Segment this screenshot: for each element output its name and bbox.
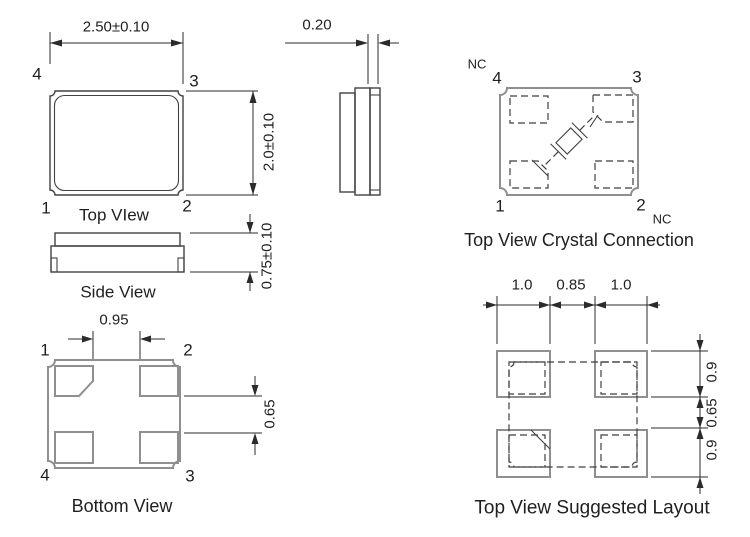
package-pad-dashed: [509, 435, 545, 467]
pin-label: 1: [40, 341, 49, 360]
pad-1-chamfered: [55, 366, 93, 396]
top-view-height-dimension: 2.0±0.10: [261, 113, 278, 171]
arrowhead-down: [697, 386, 704, 397]
land-pad-2: [595, 351, 647, 397]
crystal-lead: [546, 152, 559, 165]
side-lid: [55, 233, 180, 246]
arrowhead-down: [697, 417, 704, 428]
arrowhead-up: [252, 433, 259, 444]
pin-label: 3: [632, 68, 641, 87]
pin1-chamfer-line: [531, 430, 550, 449]
package-outline: [48, 360, 180, 468]
crystal-plate: [551, 144, 567, 160]
pad-1-dashed: [510, 161, 548, 188]
side-view-figure: 0.75±0.10 Side View: [51, 214, 276, 302]
bottom-view-pitch-dimension: 0.65: [262, 399, 279, 428]
bottom-view-gap-dimension: 0.95: [99, 312, 128, 329]
arrowhead-down: [252, 385, 259, 396]
pad-2-dashed: [595, 161, 633, 188]
arrowhead-up: [697, 397, 704, 408]
side-pad-left: [51, 258, 57, 272]
side-pad-right: [178, 258, 184, 272]
arrowhead-up: [697, 428, 704, 439]
top-view-caption: Top VIew: [79, 206, 150, 225]
pad-3-dashed: [593, 95, 633, 122]
arrowhead-left: [647, 302, 658, 309]
pin-label: 3: [189, 72, 198, 91]
arrowhead-right: [584, 302, 595, 309]
arrowhead-up: [247, 272, 254, 283]
layout-dim-bottom: 0.9: [704, 440, 721, 461]
layout-dim-middle: 0.65: [704, 398, 721, 427]
arrowhead-right: [356, 40, 368, 47]
arrowhead-down: [250, 183, 257, 195]
pin-label: 4: [492, 69, 501, 88]
land-pad-3: [497, 430, 550, 477]
side-view-height-dimension: 0.75±0.10: [259, 223, 276, 290]
nc-label: NC: [653, 212, 672, 227]
arrowhead-right: [486, 302, 497, 309]
layout-dim-right: 1.0: [611, 277, 632, 294]
profile-thickness-dimension: 0.20: [302, 17, 331, 34]
pad-4-dashed: [510, 96, 548, 123]
bottom-view-figure: 0.95 1 2 4 3 0.65 Bottom View: [40, 312, 278, 517]
pin-label: 1: [495, 197, 504, 216]
suggested-layout-caption: Top View Suggested Layout: [474, 498, 710, 519]
package-lid: [55, 96, 179, 191]
side-base: [51, 246, 184, 272]
arrowhead-left: [595, 302, 606, 309]
crystal-lead: [580, 118, 593, 131]
profile-base: [370, 88, 380, 195]
arrowhead-left: [378, 40, 390, 47]
pin-label: 2: [182, 197, 191, 216]
arrowhead-left: [140, 336, 151, 343]
layout-dim-left: 1.0: [512, 277, 533, 294]
package-pad-dashed: [509, 362, 545, 394]
package-pad-dashed: [601, 362, 637, 394]
profile-body: [355, 88, 370, 195]
arrowhead-down: [697, 340, 704, 351]
land-pad-1: [497, 351, 550, 397]
nc-label: NC: [468, 57, 487, 72]
bottom-view-caption: Bottom View: [72, 496, 174, 516]
layout-dim-top: 0.9: [704, 362, 721, 383]
side-view-caption: Side View: [80, 283, 156, 302]
drawing-sheet: 2.50±0.10 4 3 1 2 2.0±0.10 Top VIew 0.20: [0, 0, 750, 537]
top-view-figure: 2.50±0.10 4 3 1 2 2.0±0.10 Top VIew: [32, 19, 277, 225]
package-pad-dashed: [601, 435, 637, 467]
land-pad-4: [595, 430, 647, 477]
arrowhead-up: [250, 91, 257, 103]
crystal-connection-caption: Top View Crystal Connection: [464, 230, 694, 250]
layout-dim-center: 0.85: [556, 277, 585, 294]
pad-2: [140, 366, 178, 396]
package-drawing: 2.50±0.10 4 3 1 2 2.0±0.10 Top VIew 0.20: [0, 0, 750, 537]
pad-3-link-line: [590, 115, 598, 127]
pad-3: [140, 432, 178, 463]
arrowhead-up: [697, 477, 704, 488]
arrowhead-right: [539, 302, 550, 309]
arrowhead-down: [247, 222, 254, 233]
pin-label: 4: [32, 65, 41, 84]
crystal-plate: [572, 123, 588, 139]
profile-lid: [340, 93, 355, 192]
crystal-connection-figure: NC 4 3 1 2 NC Top View Crystal Connectio…: [464, 57, 694, 251]
package-outline: [50, 91, 183, 195]
crystal-body: [556, 128, 582, 154]
crystal-symbol: [538, 110, 600, 172]
arrowhead-left: [550, 302, 561, 309]
package-outline-dashed: [509, 362, 637, 467]
arrowhead-left: [50, 40, 62, 47]
arrowhead-right: [82, 336, 93, 343]
pin-label: 3: [185, 467, 194, 486]
pin-label: 1: [41, 199, 50, 218]
pin-label: 4: [40, 466, 49, 485]
arrowhead-right: [171, 40, 183, 47]
top-view-width-dimension: 2.50±0.10: [83, 19, 150, 36]
suggested-layout-figure: 1.0 0.85 1.0 0.9 0.: [474, 277, 720, 519]
pin-label: 2: [636, 196, 645, 215]
side-profile-figure: 0.20: [285, 17, 399, 196]
pin-label: 2: [183, 341, 192, 360]
pad-4: [55, 432, 93, 463]
package-outline: [500, 88, 638, 195]
